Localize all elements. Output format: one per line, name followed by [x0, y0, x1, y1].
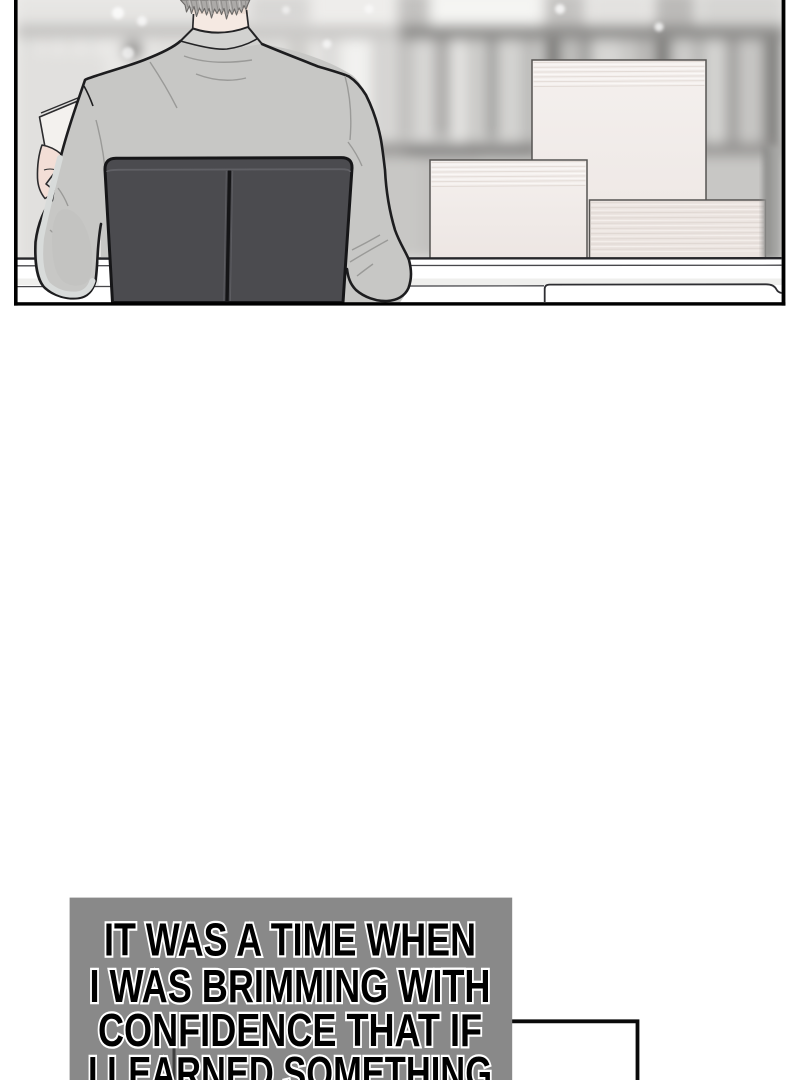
svg-text:I LEARNED SOMETHING: I LEARNED SOMETHING [88, 1047, 492, 1080]
svg-text:IT WAS A TIME WHEN: IT WAS A TIME WHEN [104, 914, 476, 966]
